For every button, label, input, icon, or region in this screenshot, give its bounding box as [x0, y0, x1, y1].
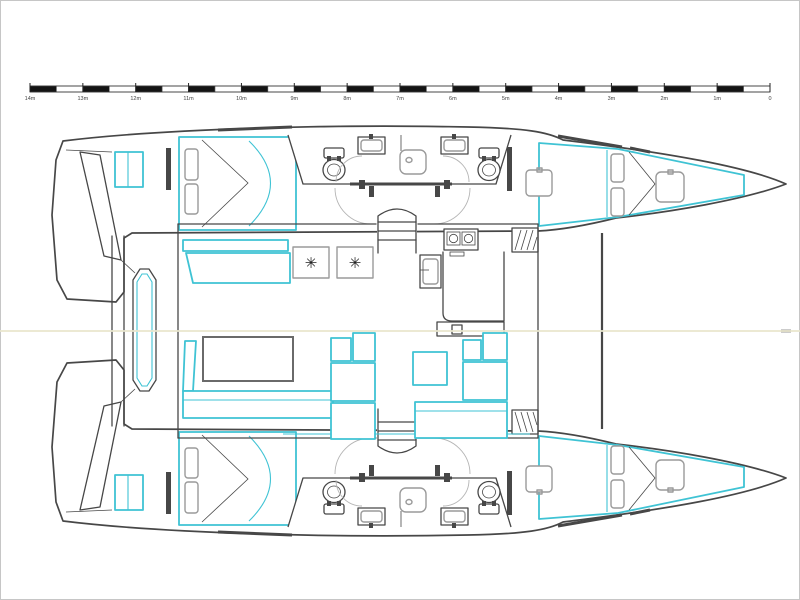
scale-label: 11m — [183, 96, 194, 102]
scale-label: 10m — [236, 96, 247, 102]
scale-segment — [585, 86, 611, 92]
storage-column — [331, 333, 375, 439]
scale-label: 7m — [396, 96, 404, 102]
top-hull — [52, 126, 786, 302]
scale-segment — [136, 86, 162, 92]
scale-label: 14m — [25, 96, 36, 102]
scale-segment — [215, 86, 241, 92]
scale-segment — [162, 86, 188, 92]
fridge-icon: ✳ — [305, 255, 318, 272]
scale-segment — [30, 86, 56, 92]
fridge-left: ✳ — [293, 247, 329, 278]
scale-label: 3m — [608, 96, 616, 102]
scale-label: 2m — [660, 96, 668, 102]
scale-segment — [638, 86, 664, 92]
scale-segment — [321, 86, 347, 92]
scale-label: 12m — [130, 96, 141, 102]
scale-segment — [611, 86, 637, 92]
coffee-table — [413, 352, 447, 385]
aft-bench — [133, 269, 156, 391]
scale-segment — [347, 86, 373, 92]
scale-segment — [189, 86, 215, 92]
galley-counter — [443, 252, 504, 321]
scale-label: 1m — [713, 96, 721, 102]
scale-segment — [691, 86, 717, 92]
scale-segment — [294, 86, 320, 92]
scale-segment — [559, 86, 585, 92]
sofa-arm — [183, 341, 196, 391]
scale-segment — [109, 86, 135, 92]
galley — [420, 229, 504, 336]
scale-segment — [453, 86, 479, 92]
scale-label: 4m — [555, 96, 563, 102]
scale-bar: 14m13m12m11m10m9m8m7m6m5m4m3m2m1m0 — [25, 83, 772, 102]
scale-segment — [426, 86, 452, 92]
scale-segment — [744, 86, 770, 92]
scale-segment — [717, 86, 743, 92]
scale-label: 9m — [290, 96, 298, 102]
scale-segment — [374, 86, 400, 92]
scale-label: 5m — [502, 96, 510, 102]
bottom-hull — [52, 360, 786, 536]
fridge-icon: ✳ — [349, 255, 362, 272]
fridge-right: ✳ — [337, 247, 373, 278]
scale-segment — [56, 86, 82, 92]
scale-segment — [479, 86, 505, 92]
scale-segment — [241, 86, 267, 92]
saloon-bench-forward — [183, 240, 290, 283]
deck-plan-page: ✳ ✳ — [0, 0, 800, 600]
dinette — [183, 337, 333, 418]
scale-segment — [83, 86, 109, 92]
scale-segment — [400, 86, 426, 92]
scale-label: 13m — [78, 96, 89, 102]
scale-segment — [506, 86, 532, 92]
deck-plan-svg: ✳ ✳ — [0, 0, 800, 600]
saloon-table — [203, 337, 293, 381]
scale-label: 6m — [449, 96, 457, 102]
scale-segment — [532, 86, 558, 92]
scale-segment — [664, 86, 690, 92]
scale-label: 8m — [343, 96, 351, 102]
scale-segment — [268, 86, 294, 92]
sofa-bench — [183, 391, 333, 418]
stove — [444, 229, 478, 256]
galley-sink — [420, 255, 441, 288]
scale-label: 0 — [768, 96, 771, 102]
